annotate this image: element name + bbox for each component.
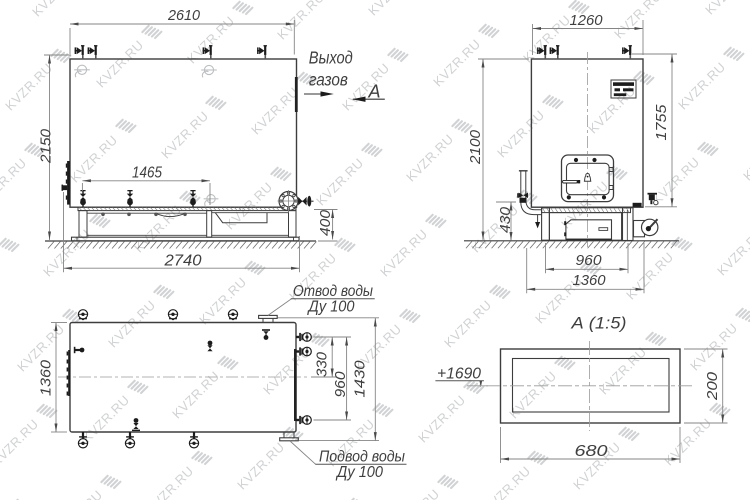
svg-text:Подвод воды: Подвод воды [319, 449, 406, 466]
svg-text:1360: 1360 [573, 273, 606, 289]
svg-text:газов: газов [309, 69, 348, 89]
svg-text:А (1:5): А (1:5) [570, 314, 626, 333]
svg-text:+1690: +1690 [437, 366, 481, 383]
svg-text:Ду 100: Ду 100 [335, 464, 383, 481]
svg-text:400: 400 [317, 209, 334, 236]
svg-text:1430: 1430 [353, 361, 369, 398]
svg-text:А: А [367, 82, 380, 102]
svg-text:2150: 2150 [37, 128, 54, 164]
svg-text:1360: 1360 [37, 359, 54, 396]
svg-text:2100: 2100 [467, 129, 484, 165]
svg-text:430: 430 [497, 206, 514, 233]
svg-text:Выход: Выход [309, 48, 353, 68]
svg-text:2610: 2610 [167, 7, 201, 24]
svg-text:Ду 100: Ду 100 [307, 298, 355, 315]
svg-text:960: 960 [333, 372, 349, 398]
svg-text:330: 330 [315, 352, 331, 377]
svg-text:1465: 1465 [132, 164, 162, 181]
svg-text:2740: 2740 [163, 252, 201, 269]
svg-text:1755: 1755 [653, 104, 670, 141]
svg-text:960: 960 [576, 253, 602, 269]
svg-text:200: 200 [704, 371, 721, 401]
svg-text:1260: 1260 [570, 13, 603, 29]
svg-text:680: 680 [575, 443, 608, 460]
